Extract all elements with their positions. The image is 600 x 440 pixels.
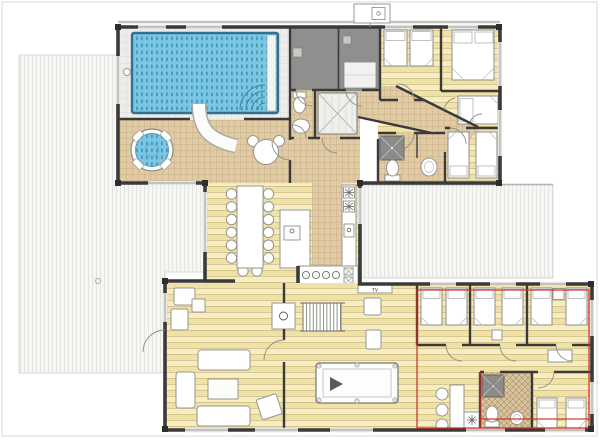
wardrobe-closet <box>318 93 357 134</box>
bar-stool <box>436 404 448 416</box>
dining-chair <box>263 202 273 212</box>
pedestal-sink <box>421 158 437 176</box>
tv-label: TV <box>371 287 379 293</box>
armchair <box>171 309 188 330</box>
lower-building: TV <box>143 281 592 431</box>
dining-chair <box>226 202 236 212</box>
dining-chair <box>226 214 236 224</box>
sofa <box>197 406 250 426</box>
range-cooktop <box>298 266 358 284</box>
storage-fixture <box>293 48 302 57</box>
bar-counter <box>450 385 464 428</box>
sauna-heater <box>343 36 351 44</box>
billiard-table <box>316 363 398 403</box>
sauna-bench <box>344 62 376 88</box>
hot-tub <box>131 129 173 171</box>
toilet <box>387 160 399 176</box>
counter-sink <box>344 224 354 237</box>
dining-chair <box>226 189 236 199</box>
sofa <box>198 350 250 370</box>
bedroom-2-double-bed <box>452 30 494 80</box>
armchair <box>366 330 381 349</box>
storage-room-floor <box>290 27 337 90</box>
dining-chair <box>263 214 273 224</box>
staircase <box>300 303 345 331</box>
dining-chair <box>226 253 236 263</box>
bar-stool <box>436 388 448 400</box>
dining-chair <box>263 253 273 263</box>
sofa <box>176 372 195 408</box>
tv-cabinet: TV <box>358 285 392 293</box>
armchair <box>364 298 381 315</box>
nightstand <box>492 330 502 340</box>
appliance-icon <box>344 202 354 211</box>
dining-chair <box>263 240 273 250</box>
kitchen-corridor-floor <box>312 183 342 268</box>
floor-plan-canvas: TV <box>0 0 600 440</box>
dining-chair <box>263 227 273 237</box>
side-table <box>192 299 205 312</box>
swimming-pool <box>132 33 278 113</box>
dining-chair <box>263 189 273 199</box>
coffee-table <box>208 379 238 399</box>
appliance-icon <box>344 188 354 197</box>
pool-wall-fixture <box>124 69 131 76</box>
dining-chair <box>226 240 236 250</box>
fireplace-stove <box>272 303 295 329</box>
fan-icon <box>467 415 477 425</box>
dining-table <box>237 186 263 268</box>
bidet-sink <box>293 119 310 133</box>
pool-edge-bench <box>267 35 276 111</box>
outdoor-terrace-east <box>360 185 553 279</box>
pedestal-sink <box>511 412 524 425</box>
dining-chair <box>226 227 236 237</box>
